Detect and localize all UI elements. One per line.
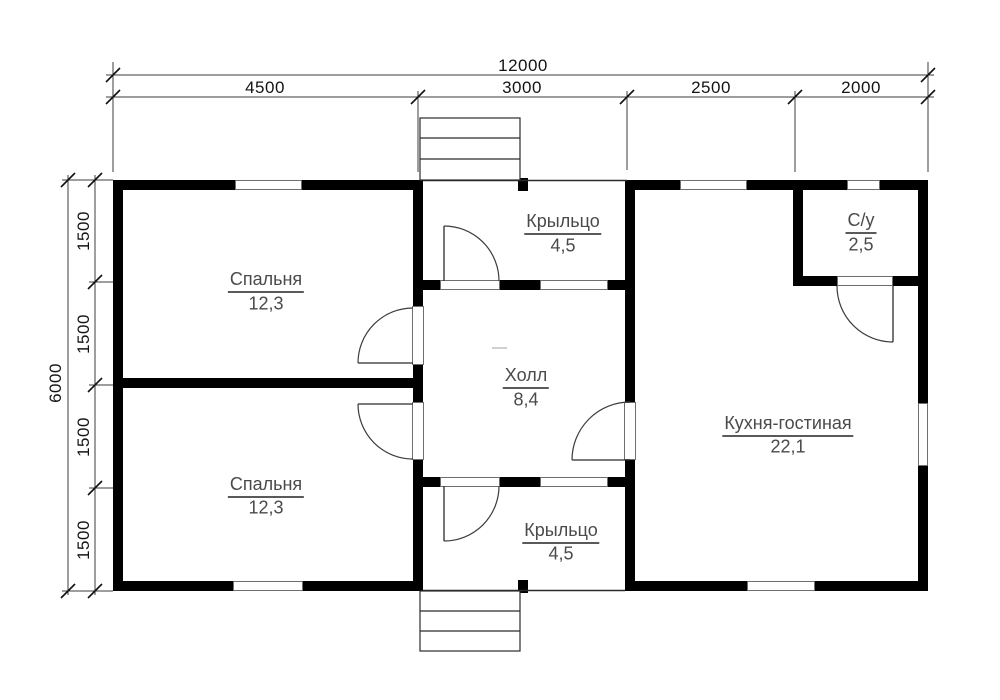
- room-area-label-porch-top: 4,5: [550, 236, 575, 257]
- door-opening: [441, 478, 500, 487]
- dimension-label: 1500: [74, 417, 94, 457]
- window: [236, 181, 302, 190]
- window: [541, 281, 608, 290]
- window: [748, 582, 815, 591]
- door-swing-arc: [444, 486, 499, 541]
- window: [681, 181, 747, 190]
- dimension-label: 2000: [841, 78, 881, 98]
- wall: [793, 190, 803, 286]
- stairs-top: [420, 118, 520, 180]
- room-area-label-bathroom: 2,5: [848, 235, 873, 256]
- room-name-label-kitchen-living: Кухня-гостиная: [722, 413, 853, 437]
- dimension-label: 1500: [74, 211, 94, 251]
- door-opening: [413, 307, 424, 365]
- door-opening: [413, 403, 424, 460]
- door-opening: [625, 403, 636, 460]
- window: [848, 181, 880, 190]
- wall: [413, 180, 423, 591]
- door-swing-arc: [358, 404, 413, 459]
- room-name-label-bathroom: С/у: [846, 210, 877, 234]
- wall: [625, 180, 635, 591]
- floor-plan-canvas: Спальня12,3Спальня12,3Холл8,4Крыльцо4,5К…: [0, 0, 1000, 700]
- dimension-label: 12000: [498, 56, 548, 76]
- window: [234, 582, 303, 591]
- door-swing-arc: [358, 308, 413, 363]
- room-name-label-porch-top: Крыльцо: [524, 211, 601, 235]
- wall: [113, 378, 423, 388]
- dimension-label: 3000: [502, 78, 542, 98]
- dimension-label: 1500: [74, 520, 94, 560]
- room-area-label-bedroom-2: 12,3: [248, 498, 283, 519]
- window: [541, 478, 608, 487]
- room-area-label-hall: 8,4: [513, 390, 538, 411]
- dimension-label: 4500: [245, 78, 285, 98]
- room-area-label-bedroom-1: 12,3: [248, 294, 283, 315]
- window: [919, 404, 928, 466]
- wall: [918, 180, 928, 591]
- dimension-label: 6000: [46, 363, 66, 403]
- door-opening: [838, 277, 893, 286]
- room-name-label-bedroom-2: Спальня: [228, 474, 304, 498]
- room-name-label-porch-bottom: Крыльцо: [522, 520, 599, 544]
- dimension-label: 2500: [691, 78, 731, 98]
- wall: [627, 180, 928, 190]
- door-swing-arc: [572, 402, 630, 460]
- door-swing-arc: [444, 226, 499, 281]
- room-name-label-hall: Холл: [503, 365, 549, 389]
- room-area-label-kitchen-living: 22,1: [770, 437, 805, 458]
- room-name-label-bedroom-1: Спальня: [228, 269, 304, 293]
- door-opening: [441, 281, 500, 290]
- floor-plan-drawing: [0, 0, 1000, 700]
- room-area-label-porch-bottom: 4,5: [548, 544, 573, 565]
- door-swing-arc: [837, 286, 893, 342]
- dimension-label: 1500: [74, 314, 94, 354]
- stairs-bottom: [420, 591, 520, 651]
